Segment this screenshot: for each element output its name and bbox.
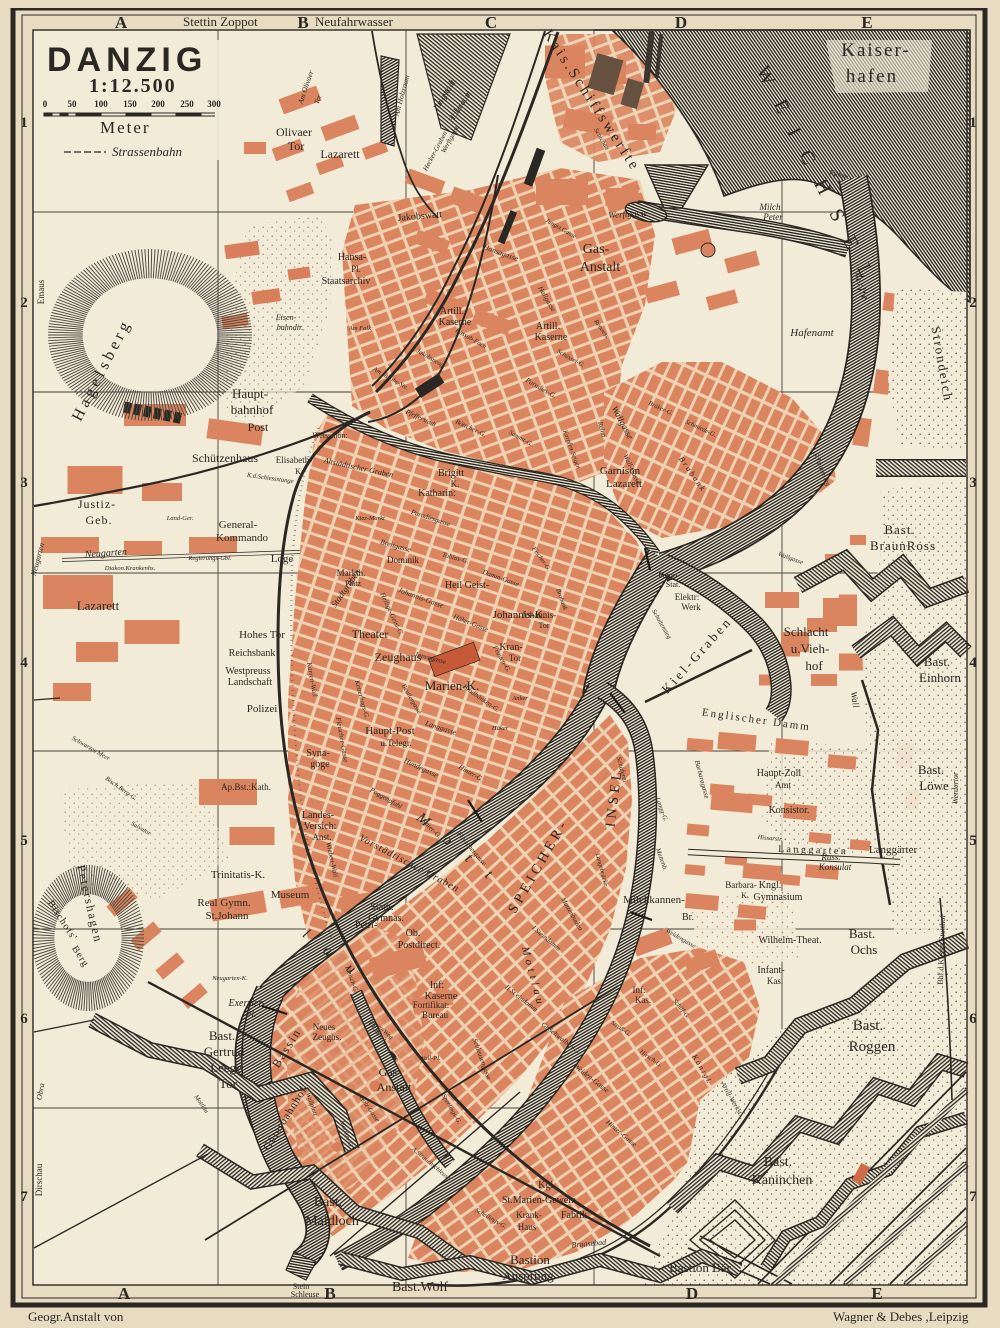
svg-text:Städt.: Städt. — [370, 902, 393, 913]
svg-text:Land-Ger.: Land-Ger. — [166, 515, 194, 522]
svg-text:150: 150 — [123, 99, 137, 109]
svg-text:Katharin:: Katharin: — [418, 488, 456, 499]
svg-text:Kaninchen: Kaninchen — [752, 1173, 813, 1188]
svg-text:Tor: Tor — [219, 1076, 238, 1091]
svg-text:2: 2 — [20, 295, 28, 311]
svg-text:Justiz-: Justiz- — [78, 497, 116, 511]
svg-text:BraunRoss: BraunRoss — [870, 538, 936, 553]
svg-text:Bast.Wolf: Bast.Wolf — [392, 1280, 448, 1295]
svg-text:Bast.: Bast. — [924, 654, 950, 669]
svg-text:Anst.: Anst. — [312, 832, 331, 842]
svg-text:Bast.: Bast. — [849, 926, 875, 941]
svg-text:Gertrud: Gertrud — [204, 1044, 245, 1059]
svg-text:7: 7 — [969, 1189, 977, 1205]
svg-text:1: 1 — [969, 115, 977, 131]
svg-text:Bast.: Bast. — [853, 1018, 883, 1034]
svg-text:Kiez-Markt: Kiez-Markt — [354, 515, 385, 522]
svg-text:50: 50 — [68, 99, 78, 109]
svg-text:Gas-: Gas- — [379, 1065, 402, 1079]
svg-text:Gas-: Gas- — [583, 242, 610, 257]
svg-text:Markth.: Markth. — [337, 568, 366, 578]
svg-text:Kas.: Kas. — [635, 995, 651, 1005]
svg-text:Platz: Platz — [345, 579, 361, 588]
svg-text:Ob.: Ob. — [406, 928, 421, 939]
svg-text:Loge: Loge — [271, 553, 294, 565]
svg-text:Pump-: Pump- — [658, 571, 680, 580]
svg-text:Zeughs.: Zeughs. — [313, 1032, 342, 1042]
svg-text:Dominik: Dominik — [387, 555, 420, 565]
svg-text:Petri-: Petri- — [355, 920, 377, 931]
svg-text:7: 7 — [20, 1189, 28, 1205]
svg-text:Konsulat: Konsulat — [818, 862, 852, 872]
svg-text:Neugarten-K.: Neugarten-K. — [211, 975, 248, 982]
svg-text:100: 100 — [94, 99, 108, 109]
svg-text:Bast.: Bast. — [209, 1028, 235, 1043]
svg-text:Landes-: Landes- — [302, 810, 334, 821]
svg-text:250: 250 — [180, 99, 194, 109]
svg-text:Bast.: Bast. — [884, 522, 915, 537]
svg-text:Pl.: Pl. — [351, 264, 361, 274]
svg-text:Reichsbank: Reichsbank — [229, 648, 276, 659]
svg-text:Artill.: Artill. — [440, 306, 464, 317]
svg-text:E: E — [871, 1284, 882, 1303]
svg-text:6: 6 — [969, 1011, 977, 1027]
svg-text:Werk: Werk — [681, 602, 701, 612]
svg-text:Staatsarchiv: Staatsarchiv — [322, 276, 371, 287]
svg-text:Postdirect.: Postdirect. — [398, 940, 441, 951]
svg-text:C: C — [485, 13, 497, 32]
svg-text:1:12.500: 1:12.500 — [89, 75, 177, 97]
svg-text:Ap.Bst.:Kath.: Ap.Bst.:Kath. — [221, 782, 271, 792]
svg-text:Barbara-: Barbara- — [725, 880, 756, 890]
svg-text:Stettin Zoppot: Stettin Zoppot — [183, 14, 258, 29]
svg-text:Brigitt: Brigitt — [438, 468, 464, 479]
svg-text:Theater: Theater — [352, 627, 389, 641]
svg-text:Fabrik: Fabrik — [561, 1210, 587, 1221]
svg-text:0: 0 — [43, 99, 48, 109]
svg-text:Milchkannen-: Milchkannen- — [623, 894, 685, 906]
svg-text:2: 2 — [969, 295, 977, 311]
svg-text:Johannis-: Johannis- — [522, 610, 557, 620]
svg-text:Landschaft: Landschaft — [228, 677, 273, 688]
svg-text:Wilhelm-Theat.: Wilhelm-Theat. — [758, 935, 821, 946]
svg-text:Schleuse: Schleuse — [291, 1290, 320, 1299]
svg-text:Haupt-Post: Haupt-Post — [365, 725, 415, 737]
svg-text:E: E — [861, 13, 872, 32]
svg-text:Wagner & Debes ,Leipzig: Wagner & Debes ,Leipzig — [833, 1309, 969, 1324]
svg-text:Krank-: Krank- — [516, 1210, 542, 1220]
svg-text:Garnison: Garnison — [600, 465, 641, 477]
svg-text:Kngl.: Kngl. — [759, 880, 782, 891]
svg-text:Pl.: Pl. — [245, 1009, 256, 1019]
svg-text:hof: hof — [805, 658, 823, 673]
svg-text:Polizei: Polizei — [247, 703, 278, 715]
svg-text:Häker: Häker — [491, 725, 509, 732]
svg-text:Diakon.Krankenhs.: Diakon.Krankenhs. — [104, 565, 156, 572]
svg-text:Neufahrwasser: Neufahrwasser — [315, 14, 394, 29]
svg-text:Anstalt: Anstalt — [580, 260, 621, 275]
svg-text:B: B — [297, 13, 308, 32]
svg-text:Lazarett: Lazarett — [77, 598, 120, 613]
svg-text:Lazarett: Lazarett — [320, 147, 360, 161]
svg-text:Milch: Milch — [759, 202, 781, 212]
svg-text:Anker: Anker — [511, 695, 528, 702]
svg-text:Br.: Br. — [682, 912, 694, 923]
svg-text:St.Marien-Geweln: St.Marien-Geweln — [502, 1195, 576, 1206]
svg-text:Bastion: Bastion — [510, 1252, 550, 1267]
svg-text:Hohes Tor: Hohes Tor — [239, 629, 285, 641]
svg-text:Konsistor.: Konsistor. — [769, 805, 810, 816]
svg-text:Ochs: Ochs — [851, 942, 878, 957]
svg-text:Ausprung: Ausprung — [502, 1268, 554, 1283]
svg-text:Museum: Museum — [271, 889, 310, 901]
svg-text:Fortifikat:: Fortifikat: — [413, 1000, 450, 1010]
svg-text:6: 6 — [20, 1011, 28, 1027]
svg-text:Anstalt: Anstalt — [377, 1080, 412, 1094]
svg-text:General-: General- — [219, 519, 258, 531]
svg-text:Tor: Tor — [509, 653, 521, 663]
svg-text:Langgärter: Langgärter — [869, 844, 918, 856]
svg-text:Peter: Peter — [762, 212, 783, 222]
svg-text:D: D — [675, 13, 687, 32]
svg-text:Inf:: Inf: — [430, 980, 444, 991]
svg-text:K.: K. — [741, 891, 749, 900]
svg-text:Weissmön:: Weissmön: — [312, 431, 347, 440]
svg-text:DANZIG: DANZIG — [47, 41, 207, 79]
svg-text:Einhorn: Einhorn — [919, 670, 961, 685]
svg-text:K.: K. — [295, 467, 303, 476]
svg-text:Elisabeth-: Elisabeth- — [276, 455, 313, 465]
svg-text:Heil Geist-: Heil Geist- — [445, 580, 489, 591]
svg-text:Eisen-: Eisen- — [275, 313, 297, 322]
svg-text:Westpreuss: Westpreuss — [225, 666, 270, 677]
svg-text:Gymnasium: Gymnasium — [754, 892, 803, 903]
svg-text:Neues: Neues — [313, 1022, 336, 1032]
svg-text:Leege: Leege — [210, 1060, 242, 1075]
svg-text:Kaserne: Kaserne — [439, 317, 472, 328]
svg-text:Meter: Meter — [100, 118, 151, 137]
svg-text:Bast.: Bast. — [764, 1155, 792, 1170]
svg-text:Geogr.Anstalt von: Geogr.Anstalt von — [28, 1309, 124, 1324]
svg-text:Werftgasse: Werftgasse — [608, 208, 648, 220]
svg-text:hafen: hafen — [846, 66, 898, 87]
svg-text:Haus: Haus — [518, 1222, 537, 1232]
svg-text:Olivaer: Olivaer — [276, 125, 312, 139]
svg-text:Real Gymn.: Real Gymn. — [197, 897, 250, 909]
svg-text:A: A — [115, 13, 128, 32]
svg-text:u.Vieh-: u.Vieh- — [791, 641, 830, 656]
svg-text:Bast.: Bast. — [918, 762, 944, 777]
svg-text:Bastion Bär: Bastion Bär — [669, 1260, 731, 1275]
svg-text:B: B — [324, 1284, 335, 1303]
svg-text:Kgl.: Kgl. — [538, 1180, 556, 1191]
svg-text:Werdertor: Werdertor — [951, 771, 960, 804]
svg-text:4: 4 — [20, 655, 28, 671]
svg-text:D: D — [686, 1284, 698, 1303]
svg-text:Exerzier-: Exerzier- — [227, 998, 265, 1009]
svg-text:Inf:: Inf: — [633, 985, 646, 995]
svg-text:Infant-: Infant- — [757, 965, 784, 976]
svg-text:200: 200 — [151, 99, 165, 109]
svg-text:Trinitatis-K.: Trinitatis-K. — [211, 869, 266, 881]
svg-text:u.Telegr.: u.Telegr. — [380, 738, 411, 748]
svg-text:Lazarett: Lazarett — [606, 478, 642, 490]
svg-text:Am Falk: Am Falk — [348, 325, 371, 332]
svg-text:Löwe: Löwe — [919, 778, 949, 793]
svg-text:A: A — [118, 1284, 131, 1303]
svg-text:Schützenhaus: Schützenhaus — [192, 451, 258, 465]
svg-text:Syna-: Syna- — [306, 748, 329, 759]
svg-text:bahnhof: bahnhof — [231, 402, 274, 417]
svg-text:St.Johann: St.Johann — [205, 910, 249, 922]
svg-text:Tor: Tor — [539, 621, 550, 630]
svg-text:Strassenbahn: Strassenbahn — [112, 144, 182, 159]
svg-text:Geb.: Geb. — [86, 513, 113, 527]
svg-text:Hansa-: Hansa- — [338, 252, 366, 263]
svg-text:Bureau: Bureau — [422, 1010, 448, 1020]
svg-text:bahndir.: bahndir. — [277, 323, 303, 332]
svg-text:Tor: Tor — [288, 139, 305, 153]
svg-text:Emaus: Emaus — [36, 279, 46, 304]
svg-text:Artill.: Artill. — [536, 321, 560, 332]
svg-text:300: 300 — [207, 99, 221, 109]
svg-text:Kran-: Kran- — [499, 642, 522, 653]
svg-text:Kommando: Kommando — [216, 532, 268, 544]
svg-text:Amt: Amt — [775, 780, 792, 790]
svg-text:Marien-K.: Marien-K. — [425, 678, 480, 693]
svg-text:Maidloch: Maidloch — [305, 1214, 359, 1229]
svg-text:1: 1 — [20, 115, 28, 131]
svg-text:Wall-Pl.: Wall-Pl. — [419, 1055, 441, 1062]
svg-text:Schlacht: Schlacht — [784, 624, 829, 639]
svg-text:Elektr:: Elektr: — [675, 592, 700, 602]
svg-text:5: 5 — [20, 833, 28, 849]
svg-text:Haupt-: Haupt- — [232, 386, 268, 401]
svg-text:3: 3 — [969, 475, 977, 491]
svg-text:4: 4 — [969, 655, 977, 671]
svg-text:goge: goge — [310, 759, 330, 770]
svg-text:3: 3 — [20, 475, 28, 491]
svg-text:Kaserne: Kaserne — [535, 332, 568, 343]
svg-text:Dirschau: Dirschau — [34, 1163, 44, 1196]
svg-text:Kas.: Kas. — [767, 976, 783, 986]
svg-text:Haupt-Zoll: Haupt-Zoll — [757, 768, 802, 779]
svg-text:Kaiser-: Kaiser- — [841, 40, 911, 61]
svg-text:Hafenamt: Hafenamt — [789, 327, 834, 339]
svg-text:Roggen: Roggen — [849, 1039, 896, 1055]
svg-text:Zeughaus: Zeughaus — [375, 650, 422, 664]
svg-text:Bast.: Bast. — [314, 1195, 342, 1210]
svg-text:Stat.: Stat. — [666, 580, 680, 589]
svg-text:5: 5 — [969, 833, 977, 849]
svg-text:Regierungs-Gbl.: Regierungs-Gbl. — [187, 555, 232, 562]
svg-text:Post: Post — [248, 420, 269, 434]
svg-text:Versich:: Versich: — [304, 821, 337, 832]
